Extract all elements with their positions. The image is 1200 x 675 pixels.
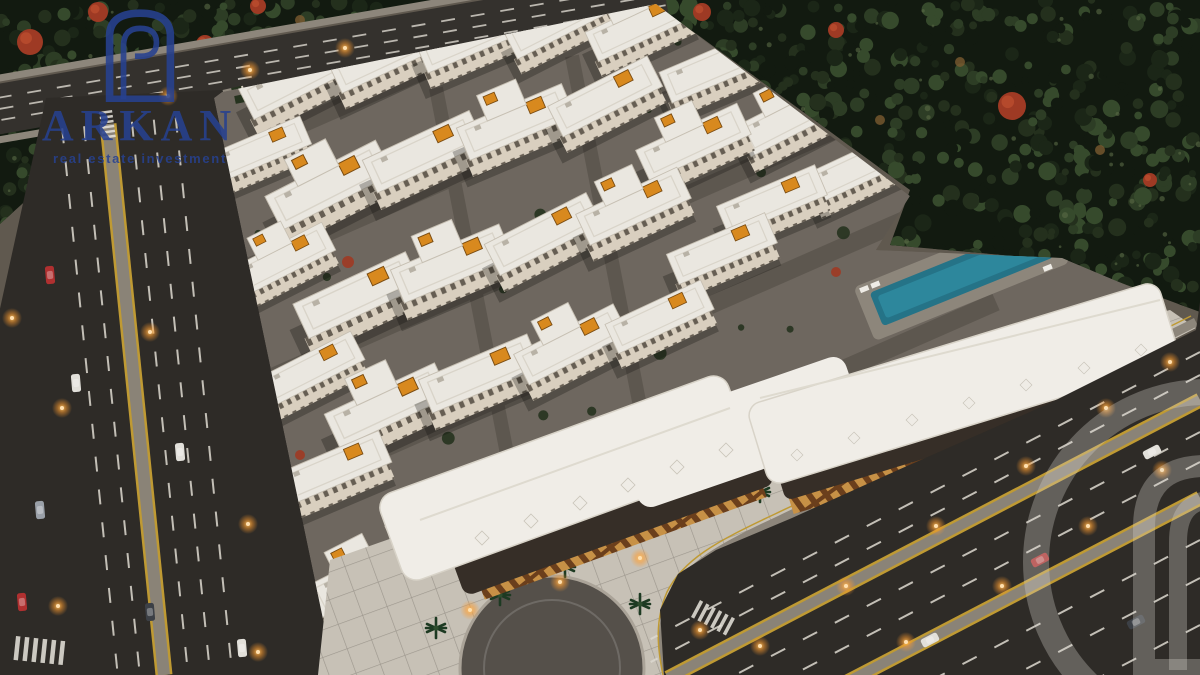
aerial-render-image: ARKAN real estate investment: [0, 0, 1200, 675]
scene-graphics: [0, 0, 1200, 675]
